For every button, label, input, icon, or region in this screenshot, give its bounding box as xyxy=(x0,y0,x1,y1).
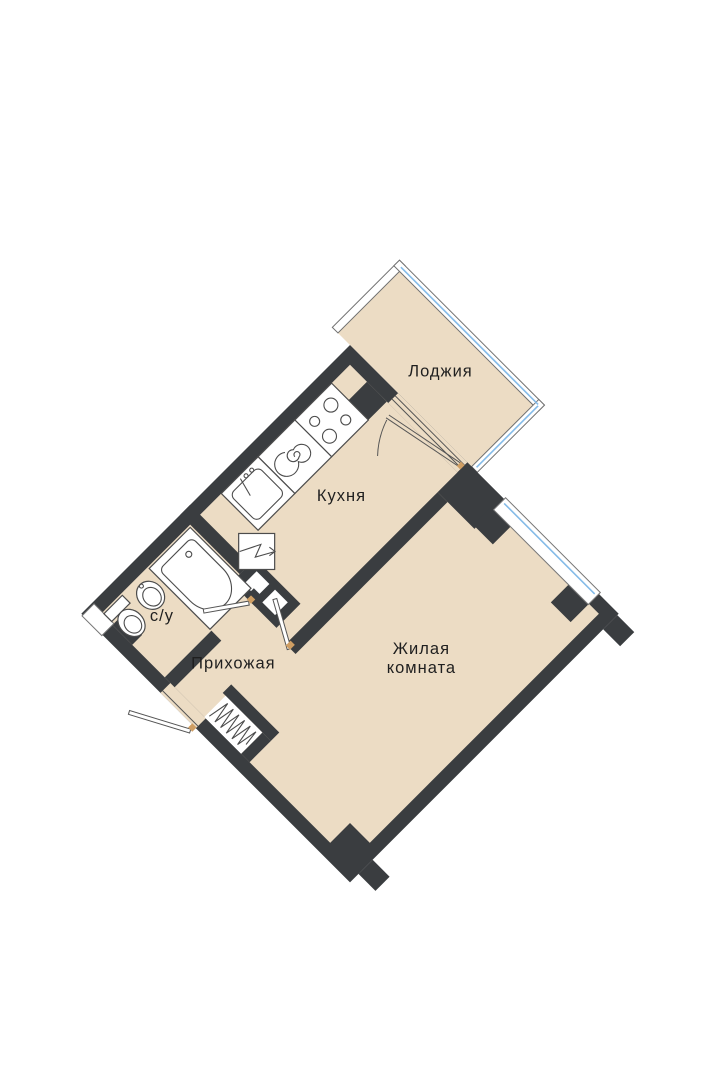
living-room-label-line1: Жилая xyxy=(393,640,450,658)
loggia-label: Лоджия xyxy=(408,362,472,380)
floorplan-svg: Лоджия Кухня с/у Прихожая Жилая комната xyxy=(25,253,718,946)
living-room-label-line2: комната xyxy=(387,659,456,677)
floorplan-canvas: Лоджия Кухня с/у Прихожая Жилая комната xyxy=(0,0,720,1080)
electric-panel-icon xyxy=(239,533,275,569)
kitchen-label: Кухня xyxy=(317,487,366,505)
hallway-label: Прихожая xyxy=(191,654,275,672)
apartment-floor xyxy=(101,365,599,863)
entrance-door-leaf xyxy=(128,710,190,733)
bathroom-label: с/у xyxy=(150,607,174,625)
